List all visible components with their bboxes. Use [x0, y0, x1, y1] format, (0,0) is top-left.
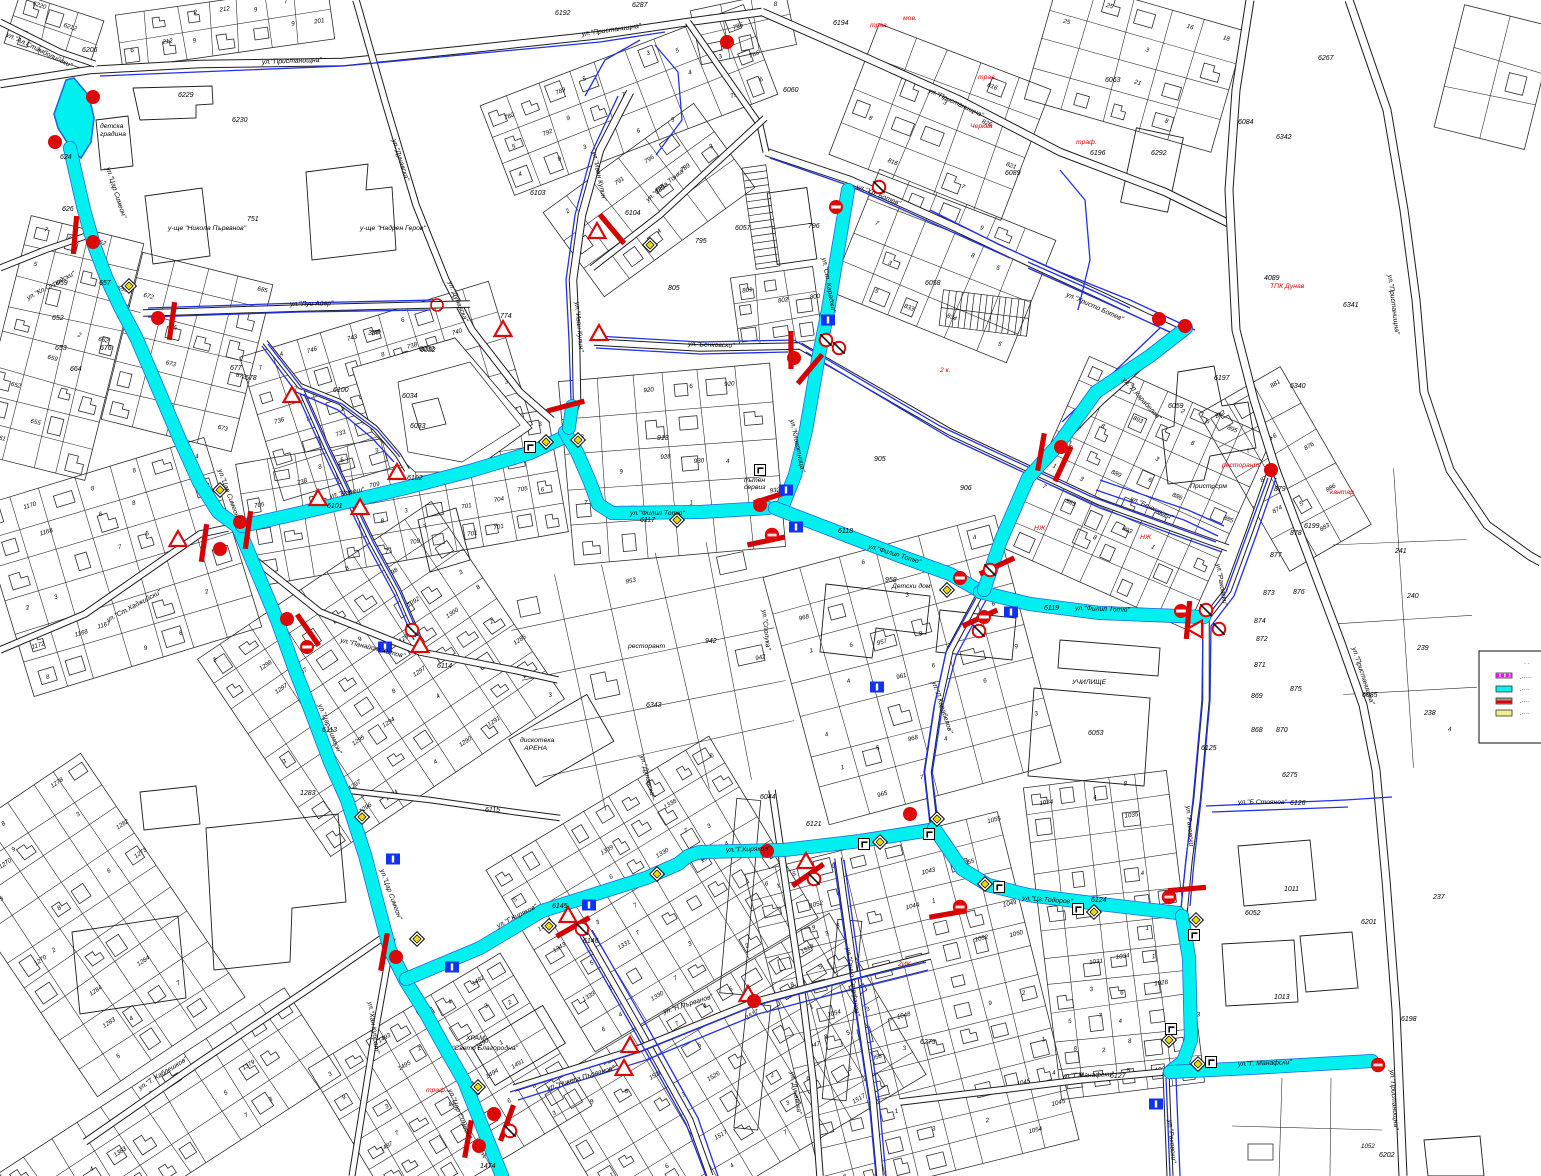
svg-text:6114: 6114 — [437, 663, 452, 670]
svg-text:653: 653 — [55, 345, 67, 352]
svg-text:у-ще "Надрен Геров": у-ще "Надрен Геров" — [359, 224, 426, 232]
svg-text:1052: 1052 — [1361, 1143, 1375, 1150]
svg-text:трав.: трав. — [870, 22, 889, 29]
svg-text:905: 905 — [874, 456, 886, 463]
svg-text:1011: 1011 — [1284, 886, 1299, 893]
svg-text:868: 868 — [1251, 727, 1263, 734]
svg-text:6057: 6057 — [735, 225, 752, 232]
svg-text:Детски дом: Детски дом — [891, 582, 931, 590]
svg-text:805: 805 — [668, 285, 680, 292]
svg-text:6342: 6342 — [1276, 134, 1292, 141]
svg-text:875: 875 — [1290, 686, 1302, 693]
svg-text:238: 238 — [1423, 710, 1436, 717]
svg-text:мов.: мов. — [903, 15, 917, 22]
svg-text:6102: 6102 — [407, 475, 423, 482]
svg-text:ресторант: ресторант — [1221, 462, 1260, 469]
svg-text:873: 873 — [1263, 590, 1275, 597]
svg-text:.····: .···· — [1520, 686, 1530, 693]
svg-text:1283: 1283 — [300, 790, 316, 797]
svg-text:659: 659 — [56, 280, 68, 287]
svg-text:928: 928 — [660, 453, 671, 461]
svg-text:2ИК: 2ИК — [897, 961, 912, 968]
svg-text:6146: 6146 — [583, 938, 599, 945]
svg-text:920: 920 — [643, 386, 654, 394]
svg-text:6340: 6340 — [1290, 383, 1306, 390]
svg-text:906: 906 — [960, 485, 972, 492]
svg-text:ТПК Дунав: ТПК Дунав — [1270, 283, 1305, 290]
svg-text:6230: 6230 — [232, 117, 248, 124]
svg-text:239: 239 — [1416, 645, 1429, 652]
svg-text:6126: 6126 — [1290, 800, 1306, 807]
svg-text:6052: 6052 — [1245, 910, 1261, 917]
svg-text:6103: 6103 — [530, 190, 546, 197]
svg-text:кантар: кантар — [1330, 489, 1354, 496]
svg-text:676: 676 — [100, 345, 112, 352]
svg-text:· ·: · · — [1524, 660, 1530, 667]
svg-text:6101: 6101 — [327, 503, 343, 510]
svg-text:6343: 6343 — [646, 702, 662, 709]
svg-text:НЖ: НЖ — [1140, 534, 1152, 541]
svg-text:6125: 6125 — [1201, 745, 1217, 752]
svg-text:2 к.: 2 к. — [939, 367, 951, 374]
svg-text:6145: 6145 — [552, 903, 568, 910]
svg-text:6060: 6060 — [783, 87, 799, 94]
svg-text:6275: 6275 — [1282, 772, 1298, 779]
svg-text:6287: 6287 — [632, 2, 649, 9]
svg-text:у-ще "Никола Първанов": у-ще "Никола Първанов" — [167, 225, 247, 232]
svg-text:Прист. срм: Прист. срм — [1190, 483, 1227, 490]
svg-text:664: 664 — [70, 366, 82, 373]
svg-text:918: 918 — [657, 435, 669, 442]
svg-text:872: 872 — [1256, 636, 1268, 643]
svg-text:624: 624 — [60, 154, 72, 161]
svg-text:657: 657 — [99, 280, 112, 287]
svg-text:ХРАМ: ХРАМ — [465, 1035, 485, 1042]
svg-text:6201: 6201 — [1361, 919, 1377, 926]
svg-text:958: 958 — [885, 577, 897, 584]
svg-text:УЧИЛИЩЕ: УЧИЛИЩЕ — [1071, 679, 1107, 686]
svg-text:пътен: пътен — [744, 477, 765, 484]
svg-text:6119: 6119 — [1044, 605, 1059, 612]
svg-text:НЖ: НЖ — [1034, 525, 1046, 532]
svg-text:652: 652 — [52, 315, 64, 322]
svg-text:траф.: траф. — [426, 1087, 447, 1094]
svg-text:240: 240 — [1406, 593, 1419, 600]
svg-text:6059: 6059 — [1168, 403, 1184, 410]
svg-text:6113: 6113 — [322, 727, 337, 734]
svg-text:6197: 6197 — [1214, 375, 1231, 382]
svg-text:874: 874 — [1254, 618, 1266, 625]
svg-text:751: 751 — [247, 216, 259, 223]
svg-text:626: 626 — [62, 206, 74, 213]
svg-text:6198: 6198 — [1401, 1016, 1417, 1023]
svg-text:796: 796 — [808, 223, 820, 230]
svg-text:6202: 6202 — [1379, 1152, 1395, 1159]
svg-text:920: 920 — [724, 380, 735, 388]
svg-text:6104: 6104 — [625, 210, 641, 217]
svg-text:871: 871 — [1254, 662, 1266, 669]
svg-text:877: 877 — [1270, 552, 1283, 559]
svg-text:траф.: траф. — [1076, 139, 1097, 146]
svg-text:6206: 6206 — [82, 47, 98, 54]
svg-text:детска: детска — [100, 122, 124, 130]
svg-text:.····: .···· — [1520, 698, 1530, 705]
svg-text:870: 870 — [1276, 727, 1288, 734]
svg-text:6267: 6267 — [1318, 55, 1335, 62]
svg-text:дискотека: дискотека — [520, 736, 555, 744]
svg-text:ул."Луи Айер": ул."Луи Айер" — [289, 299, 334, 308]
svg-text:6199: 6199 — [1304, 523, 1320, 530]
svg-text:801: 801 — [742, 286, 753, 294]
svg-text:ресторант: ресторант — [627, 643, 666, 650]
svg-text:795: 795 — [695, 238, 707, 245]
svg-text:774: 774 — [500, 313, 512, 320]
svg-text:879: 879 — [1274, 486, 1286, 493]
svg-text:сервиз: сервиз — [744, 484, 765, 491]
svg-text:6100: 6100 — [333, 387, 349, 394]
svg-text:6033: 6033 — [410, 423, 426, 430]
svg-text:241: 241 — [1394, 548, 1407, 555]
svg-text:6229: 6229 — [178, 92, 194, 99]
svg-text:6115: 6115 — [485, 807, 500, 814]
svg-text:6044: 6044 — [760, 794, 776, 801]
svg-text:6063: 6063 — [1105, 77, 1121, 84]
svg-text:237: 237 — [1432, 894, 1446, 901]
svg-text:6117: 6117 — [640, 517, 656, 524]
svg-text:.·····: .····· — [1520, 674, 1532, 681]
svg-text:6341: 6341 — [1343, 302, 1359, 309]
svg-text:942: 942 — [705, 638, 717, 645]
svg-text:6053: 6053 — [1088, 730, 1104, 737]
svg-text:градина: градина — [100, 130, 126, 138]
svg-text:678: 678 — [245, 375, 257, 382]
svg-text:677: 677 — [230, 365, 243, 372]
svg-text:6194: 6194 — [833, 20, 849, 27]
svg-text:6089: 6089 — [1005, 170, 1021, 177]
svg-text:6058: 6058 — [925, 280, 941, 287]
svg-text:1013: 1013 — [1274, 994, 1290, 1001]
svg-text:Черква: Черква — [970, 123, 993, 130]
svg-text:802: 802 — [778, 296, 790, 304]
svg-text:878: 878 — [1290, 530, 1302, 537]
svg-text:1474: 1474 — [480, 1163, 496, 1170]
svg-text:6118: 6118 — [838, 528, 853, 535]
svg-text:ул."Б Стоянов": ул."Б Стоянов" — [1237, 799, 1288, 806]
svg-text:"Свето Благородна": "Свето Благородна" — [452, 1044, 519, 1052]
svg-text:387: 387 — [368, 330, 381, 337]
svg-text:.····: .···· — [1520, 710, 1530, 717]
svg-text:6196: 6196 — [1090, 150, 1106, 157]
svg-text:6084: 6084 — [1238, 119, 1254, 126]
svg-text:6034: 6034 — [402, 393, 418, 400]
svg-text:АРЕНА: АРЕНА — [523, 745, 548, 752]
svg-text:6032: 6032 — [419, 346, 435, 353]
svg-text:6121: 6121 — [806, 821, 822, 828]
svg-text:930: 930 — [694, 457, 705, 465]
svg-text:трав.: трав. — [978, 74, 997, 81]
svg-text:6124: 6124 — [1091, 897, 1107, 904]
svg-text:6085: 6085 — [1362, 692, 1378, 699]
svg-text:869: 869 — [1251, 693, 1263, 700]
svg-text:876: 876 — [1293, 589, 1305, 596]
svg-text:6192: 6192 — [555, 10, 571, 17]
svg-text:6275: 6275 — [920, 1039, 936, 1046]
svg-text:6292: 6292 — [1151, 150, 1167, 157]
svg-text:4089: 4089 — [1264, 275, 1280, 282]
svg-text:6127: 6127 — [1110, 1073, 1127, 1080]
svg-text:800: 800 — [809, 293, 821, 301]
svg-text:ул."Филип Тотю": ул."Филип Тотю" — [629, 510, 685, 517]
